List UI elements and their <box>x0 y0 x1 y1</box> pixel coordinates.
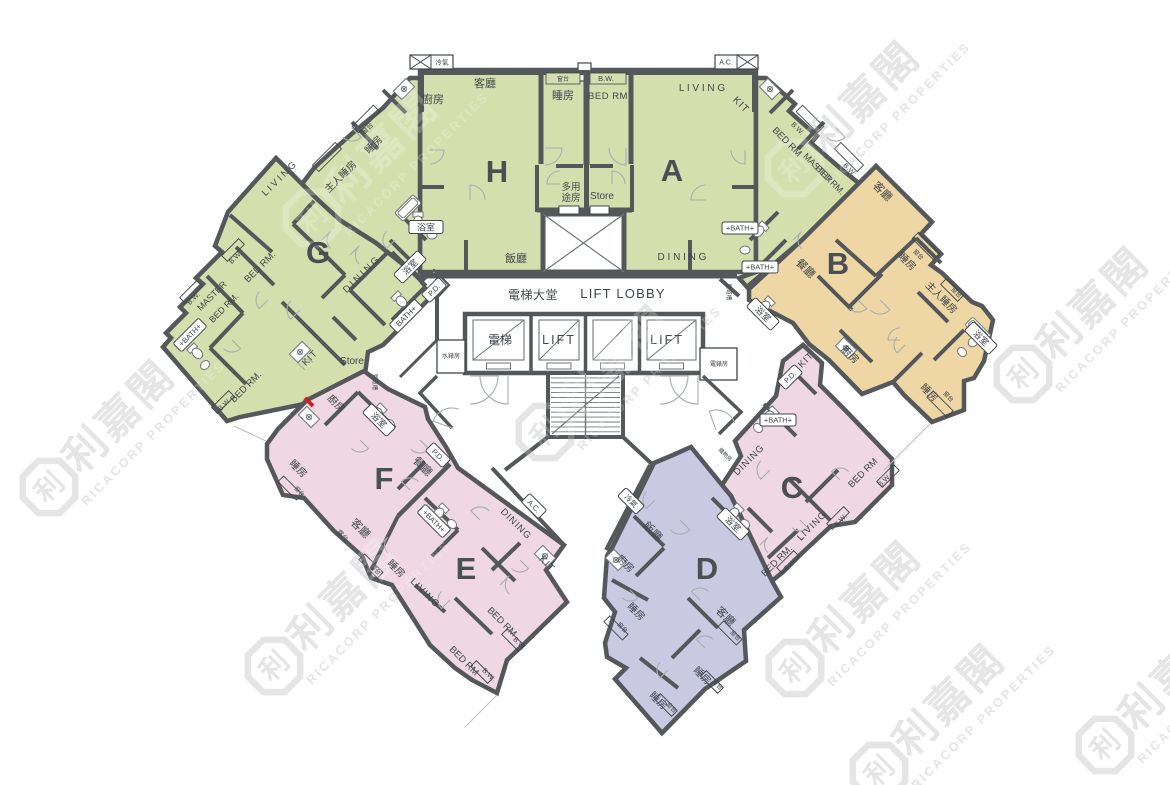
svg-text:客廳: 客廳 <box>474 76 496 90</box>
svg-text:A.C.: A.C. <box>719 60 733 67</box>
svg-text:冷氣: 冷氣 <box>436 58 450 67</box>
svg-text:途房: 途房 <box>561 192 580 204</box>
svg-text:LIFT: LIFT <box>542 333 576 347</box>
svg-text:電梯: 電梯 <box>488 333 512 347</box>
svg-text:LIFT LOBBY: LIFT LOBBY <box>580 286 665 301</box>
svg-text:BED RM: BED RM <box>588 91 628 102</box>
svg-text:管道槽: 管道槽 <box>371 374 379 391</box>
svg-text:管道槽: 管道槽 <box>725 284 733 301</box>
svg-text:電梯大堂: 電梯大堂 <box>508 288 558 302</box>
svg-text:睡房: 睡房 <box>552 89 574 102</box>
svg-text:L I V I N G: L I V I N G <box>679 83 726 94</box>
svg-text:G: G <box>306 235 330 270</box>
svg-text:B: B <box>827 246 849 281</box>
svg-text:+BATH+: +BATH+ <box>764 416 793 425</box>
svg-text:廚房: 廚房 <box>422 92 444 106</box>
svg-text:飯廳: 飯廳 <box>505 251 527 265</box>
svg-text:水錶房: 水錶房 <box>442 352 460 360</box>
svg-text:電錶房: 電錶房 <box>710 360 728 368</box>
svg-text:+BATH+: +BATH+ <box>726 224 755 233</box>
svg-text:A: A <box>661 153 683 188</box>
svg-text:多用: 多用 <box>561 181 580 193</box>
svg-text:浴室: 浴室 <box>417 221 435 232</box>
svg-text:E: E <box>456 551 477 586</box>
svg-text:+BATH+: +BATH+ <box>746 263 775 272</box>
svg-text:H: H <box>486 154 508 189</box>
svg-text:Store: Store <box>340 356 364 367</box>
svg-text:Store: Store <box>590 191 614 202</box>
svg-text:B.W.: B.W. <box>598 74 614 83</box>
svg-text:D: D <box>696 551 718 586</box>
svg-text:D I N I N G: D I N I N G <box>658 252 707 263</box>
svg-text:C: C <box>781 470 803 505</box>
svg-text:F: F <box>375 461 394 496</box>
svg-text:窗台: 窗台 <box>557 75 569 83</box>
